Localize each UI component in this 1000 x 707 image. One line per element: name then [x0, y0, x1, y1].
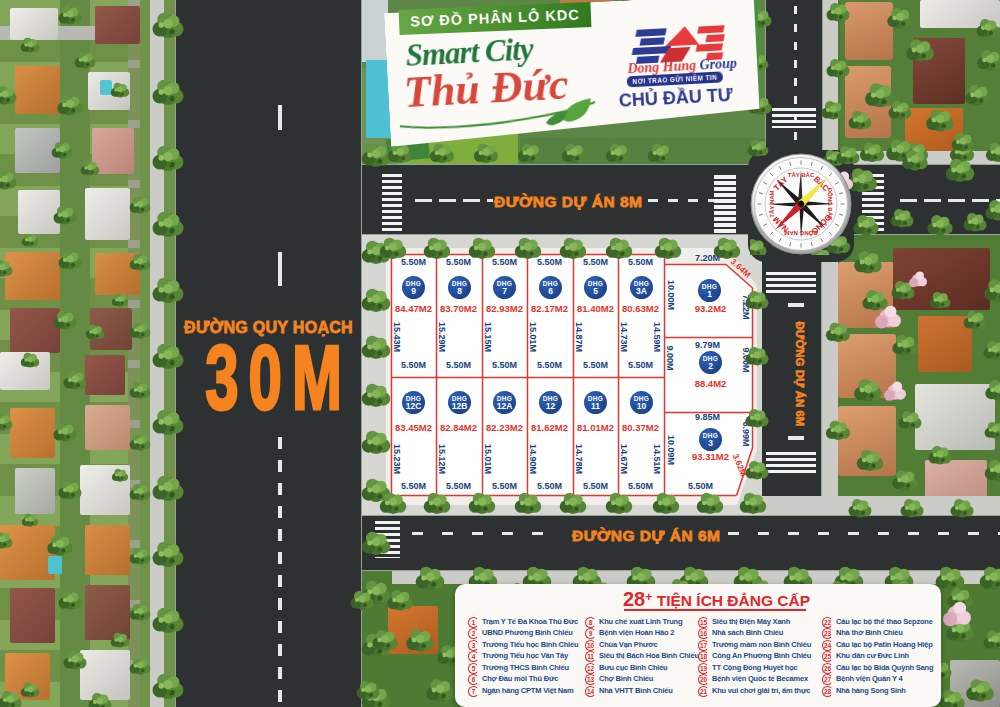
- svg-text:TÂY BẮC: TÂY BẮC: [788, 171, 815, 178]
